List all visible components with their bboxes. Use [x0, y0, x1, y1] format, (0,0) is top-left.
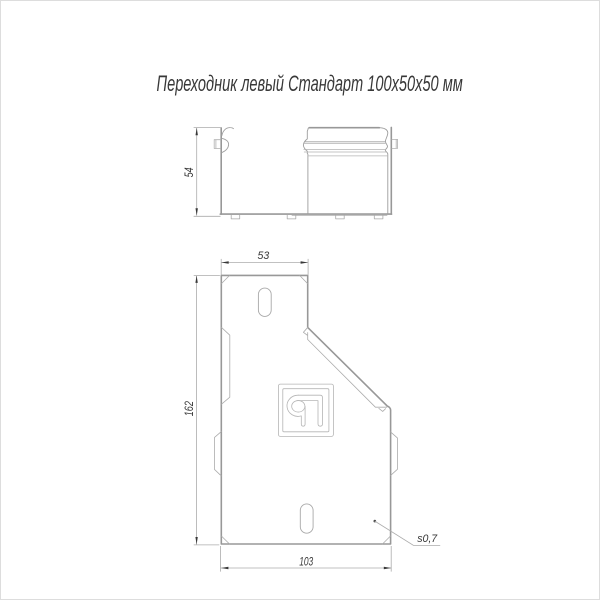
svg-text:s0,7: s0,7 [417, 532, 438, 544]
svg-text:103: 103 [299, 556, 313, 569]
svg-text:162: 162 [183, 401, 197, 416]
svg-text:Переходник левый Стандарт 100х: Переходник левый Стандарт 100х50х50 мм [157, 71, 463, 96]
svg-text:54: 54 [184, 167, 196, 177]
svg-text:53: 53 [258, 250, 271, 262]
